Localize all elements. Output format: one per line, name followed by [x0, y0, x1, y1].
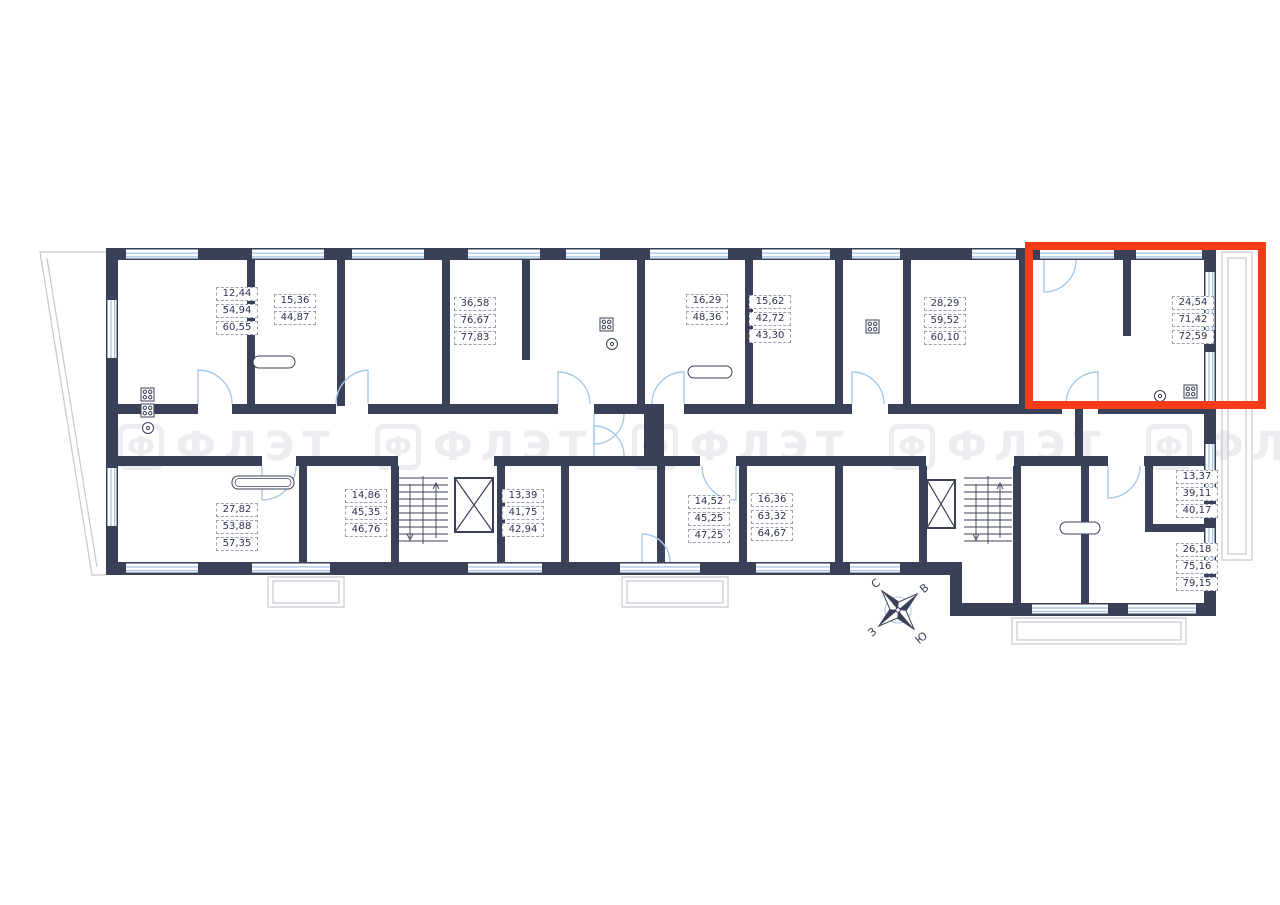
living-area: 45,35 — [345, 506, 387, 520]
floor-plan-drawing: С В Ю З — [0, 0, 1280, 905]
apartment-label[interactable]: 12,44 54,94 60,55 — [216, 287, 258, 335]
living-area: 75,16 — [1176, 560, 1218, 574]
stairs-icon — [398, 476, 448, 544]
room-area: 15,36 — [274, 294, 316, 308]
room-area: 13,39 — [502, 489, 544, 503]
living-area: 76,67 — [454, 314, 496, 328]
room-area: 15,62 — [749, 295, 791, 309]
total-area: 57,35 — [216, 537, 258, 551]
apartment-label[interactable]: 13,39 41,75 42,94 — [502, 489, 544, 537]
room-area: 27,82 — [216, 503, 258, 517]
apartment-label[interactable]: 14,52 45,25 47,25 — [688, 495, 730, 543]
total-area: 64,67 — [751, 527, 793, 541]
total-area: 42,94 — [502, 523, 544, 537]
room-area: 14,52 — [688, 495, 730, 509]
apartment-label[interactable]: 16,36 63,32 64,67 — [751, 493, 793, 541]
living-area: 59,52 — [924, 314, 966, 328]
room-area: 16,36 — [751, 493, 793, 507]
total-area: 40,17 — [1176, 504, 1218, 518]
compass-north-label: С — [869, 576, 883, 591]
room-area: 28,29 — [924, 297, 966, 311]
total-area: 43,30 — [749, 329, 791, 343]
total-area: 44,87 — [274, 311, 316, 325]
compass-west-label: З — [865, 625, 879, 639]
total-area: 77,83 — [454, 331, 496, 345]
apartment-label[interactable]: 13,37 39,11 40,17 — [1176, 470, 1218, 518]
living-area: 53,88 — [216, 520, 258, 534]
apartment-label[interactable]: 27,82 53,88 57,35 — [216, 503, 258, 551]
compass-south-label: Ю — [913, 629, 931, 647]
apartment-label[interactable]: 26,18 75,16 79,15 — [1176, 543, 1218, 591]
total-area: 60,10 — [924, 331, 966, 345]
living-area: 54,94 — [216, 304, 258, 318]
living-area: 45,25 — [688, 512, 730, 526]
apartment-label[interactable]: 36,58 76,67 77,83 — [454, 297, 496, 345]
elevator-icon — [927, 480, 955, 528]
living-area: 63,32 — [751, 510, 793, 524]
living-area: 39,11 — [1176, 487, 1218, 501]
total-area: 47,25 — [688, 529, 730, 543]
total-area: 60,55 — [216, 321, 258, 335]
room-area: 36,58 — [454, 297, 496, 311]
apartment-label[interactable]: 16,29 48,36 — [686, 294, 728, 325]
elevator-icon — [455, 478, 493, 532]
room-area: 13,37 — [1176, 470, 1218, 484]
floorplan-page: Ф ФЛЭТ Ф ФЛЭТ Ф ФЛЭТ Ф ФЛЭТ Ф ФЛЭТ — [0, 0, 1280, 905]
apartment-label[interactable]: 28,29 59,52 60,10 — [924, 297, 966, 345]
selected-apartment-highlight[interactable] — [1025, 242, 1266, 409]
stairs-icon — [964, 476, 1012, 544]
living-area: 41,75 — [502, 506, 544, 520]
room-area: 16,29 — [686, 294, 728, 308]
total-area: 48,36 — [686, 311, 728, 325]
total-area: 79,15 — [1176, 577, 1218, 591]
compass-east-label: В — [917, 581, 931, 596]
room-area: 14,86 — [345, 489, 387, 503]
apartment-label[interactable]: 14,86 45,35 46,76 — [345, 489, 387, 537]
room-area: 26,18 — [1176, 543, 1218, 557]
apartment-label[interactable]: 15,62 42,72 43,30 — [749, 295, 791, 343]
living-area: 42,72 — [749, 312, 791, 326]
apartment-label[interactable]: 15,36 44,87 — [274, 294, 316, 325]
room-area: 12,44 — [216, 287, 258, 301]
total-area: 46,76 — [345, 523, 387, 537]
